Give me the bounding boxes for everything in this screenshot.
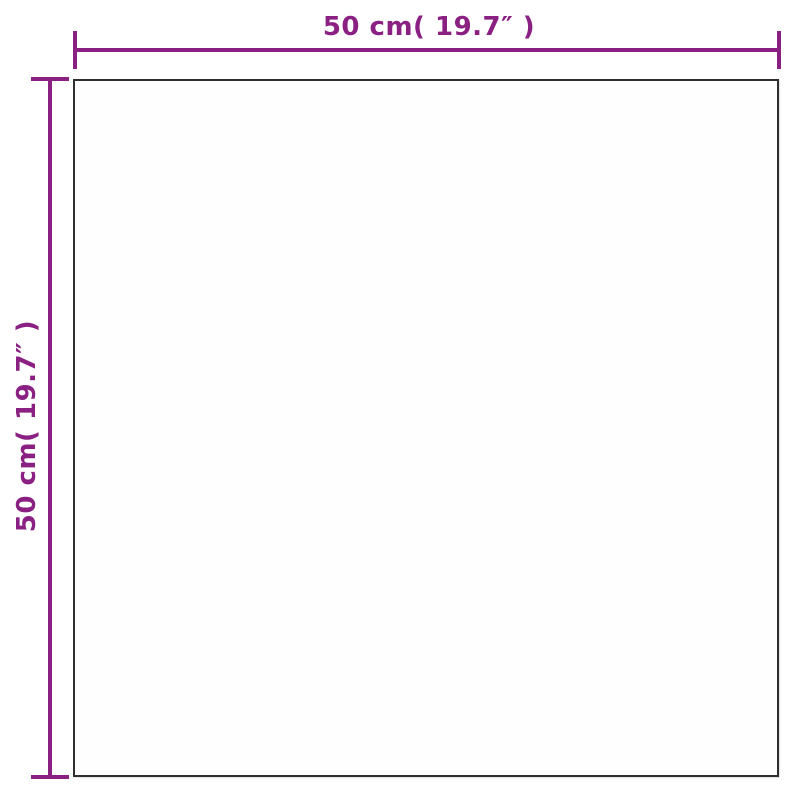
left-dimension-line bbox=[48, 79, 52, 777]
left-dimension-tick-top bbox=[31, 77, 69, 81]
top-dimension-tick-left bbox=[73, 31, 77, 69]
product-outline-square bbox=[73, 79, 779, 777]
left-dimension-label: 50 cm( 19.7″ ) bbox=[12, 320, 42, 532]
left-dimension-tick-bottom bbox=[31, 775, 69, 779]
top-dimension-label: 50 cm( 19.7″ ) bbox=[323, 12, 535, 42]
top-dimension-tick-right bbox=[777, 31, 781, 69]
dimension-diagram: 50 cm( 19.7″ ) 50 cm( 19.7″ ) bbox=[0, 0, 800, 800]
top-dimension-line bbox=[75, 48, 779, 52]
